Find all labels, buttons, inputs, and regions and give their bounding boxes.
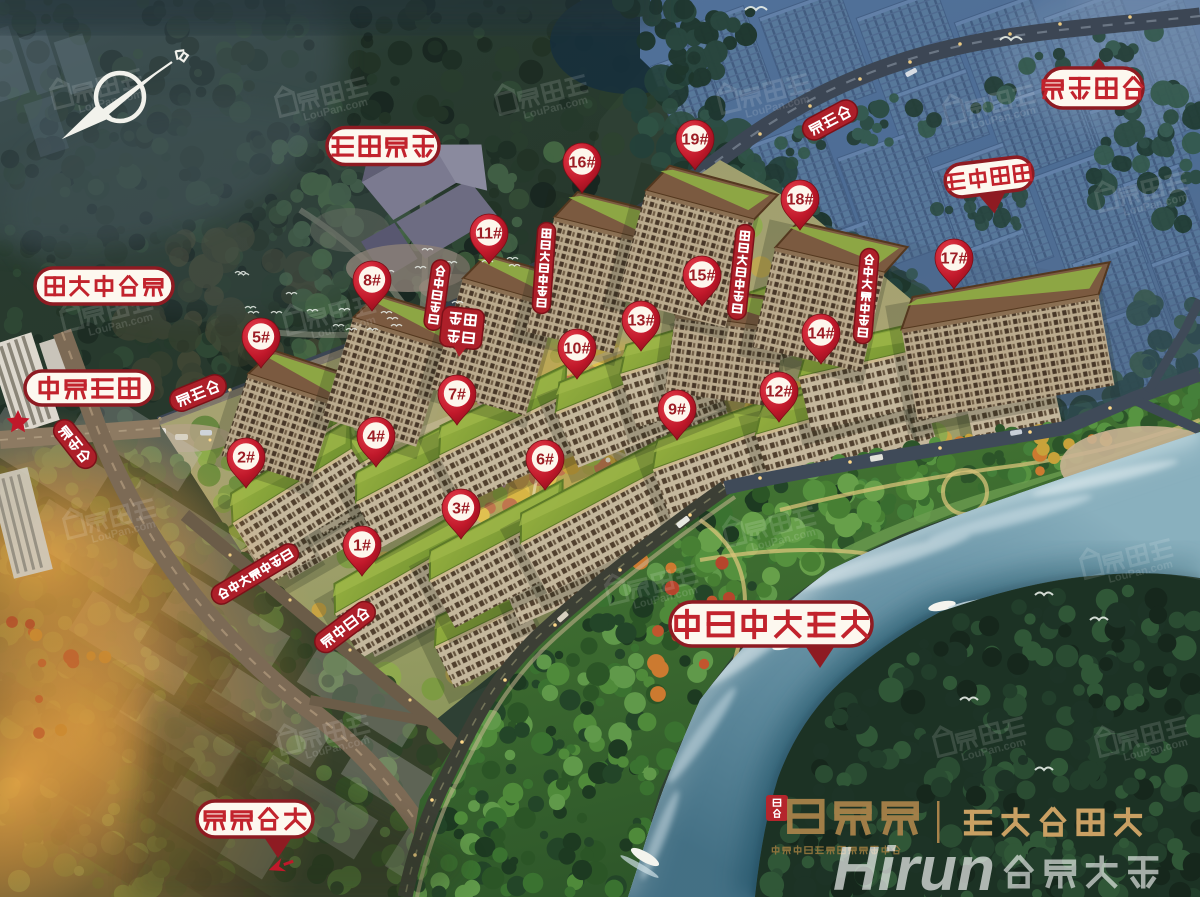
svg-text:7#: 7# xyxy=(448,387,466,404)
svg-text:6#: 6# xyxy=(536,452,554,469)
svg-text:19#: 19# xyxy=(682,132,709,149)
svg-text:2#: 2# xyxy=(237,450,255,467)
svg-text:18#: 18# xyxy=(787,192,814,209)
svg-text:8#: 8# xyxy=(363,273,381,290)
svg-text:15#: 15# xyxy=(689,268,716,285)
svg-text:4#: 4# xyxy=(367,429,385,446)
svg-text:Hirun: Hirun xyxy=(833,835,995,897)
svg-text:9#: 9# xyxy=(668,402,686,419)
svg-text:13#: 13# xyxy=(628,313,655,330)
svg-text:12#: 12# xyxy=(766,384,793,401)
svg-text:11#: 11# xyxy=(476,226,502,243)
svg-text:5#: 5# xyxy=(252,330,270,347)
svg-text:1#: 1# xyxy=(353,538,371,555)
svg-text:16#: 16# xyxy=(569,155,596,172)
svg-text:10#: 10# xyxy=(564,341,591,358)
svg-text:3#: 3# xyxy=(452,501,470,518)
svg-text:14#: 14# xyxy=(808,326,835,343)
svg-text:17#: 17# xyxy=(941,251,968,268)
